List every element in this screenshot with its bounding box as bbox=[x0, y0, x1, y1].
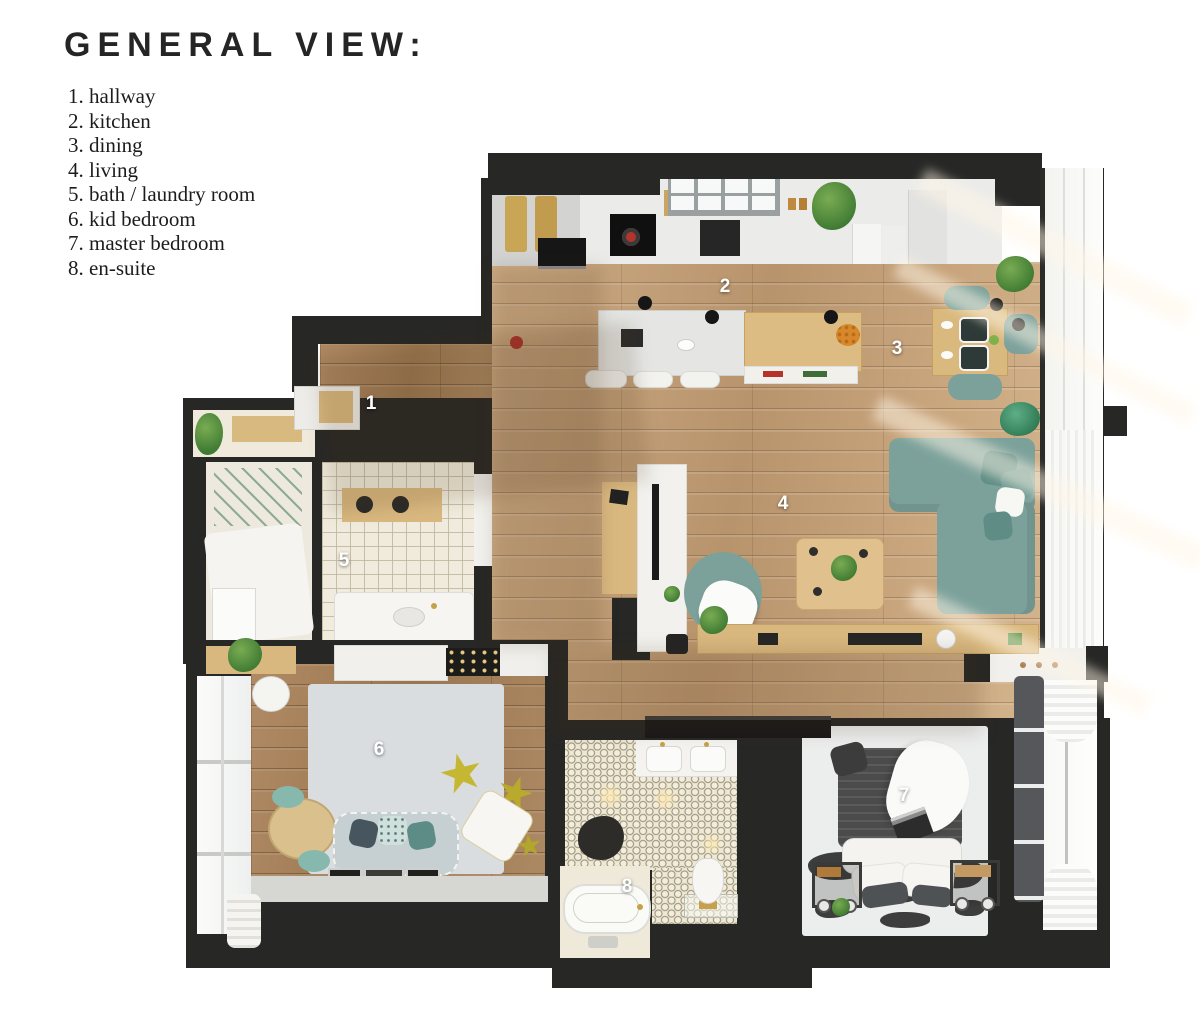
bench-item bbox=[1008, 633, 1022, 645]
floor-ledge bbox=[251, 876, 548, 902]
sink-basin bbox=[690, 746, 726, 772]
room-label-kitchen: 2 bbox=[720, 276, 731, 298]
wall bbox=[995, 153, 1042, 206]
laptop bbox=[609, 489, 629, 505]
dark-plant bbox=[578, 816, 624, 860]
dining-table bbox=[932, 308, 1008, 376]
sink-basin bbox=[393, 607, 425, 627]
pendant-light bbox=[638, 296, 652, 310]
star-pillow: ★ bbox=[514, 826, 555, 867]
kid-desk bbox=[334, 645, 448, 681]
plate bbox=[941, 351, 953, 359]
table-lamp bbox=[936, 629, 956, 649]
legend-item-dining: 3. dining bbox=[68, 133, 255, 158]
plant bbox=[831, 555, 857, 581]
room-label-bath-laundry: 5 bbox=[339, 550, 350, 572]
gold-faucet bbox=[704, 742, 709, 747]
pendant-light bbox=[824, 310, 838, 324]
oven bbox=[538, 238, 586, 269]
gold-faucet bbox=[431, 603, 437, 609]
media-bench bbox=[697, 624, 1039, 654]
bath-mat bbox=[588, 936, 618, 948]
legend-item-living: 4. living bbox=[68, 158, 255, 183]
pillow bbox=[983, 511, 1014, 542]
kitchen-appliance bbox=[882, 226, 906, 264]
ladder-shelf bbox=[214, 468, 302, 526]
room-label-dining: 3 bbox=[892, 338, 903, 360]
dining-chair bbox=[944, 286, 990, 310]
pendant-light bbox=[1012, 318, 1025, 331]
kitchen-window bbox=[668, 176, 780, 216]
tv bbox=[652, 484, 659, 580]
cutting-board bbox=[505, 196, 527, 252]
dining-chair bbox=[948, 374, 1002, 400]
kid-chair bbox=[272, 786, 304, 808]
light-switch bbox=[1052, 662, 1058, 668]
legend-item-kid-bedroom: 6. kid bedroom bbox=[68, 207, 255, 232]
cup bbox=[859, 549, 868, 558]
gold-faucet bbox=[660, 742, 665, 747]
room-label-en-suite: 8 bbox=[622, 876, 633, 898]
speaker bbox=[666, 634, 688, 654]
cup bbox=[809, 547, 818, 556]
sink-basin bbox=[646, 746, 682, 772]
dining-chair-tucked bbox=[959, 317, 989, 343]
window-frame bbox=[197, 760, 251, 764]
bathtub-sink-unit bbox=[334, 592, 474, 644]
pillow-dark bbox=[911, 884, 953, 908]
fruit-bowl bbox=[836, 324, 860, 346]
wall-stub bbox=[1086, 646, 1108, 682]
room-label-master-bedroom: 7 bbox=[899, 785, 910, 807]
window-panes bbox=[671, 179, 777, 213]
kid-door bbox=[500, 644, 548, 676]
bar-stool bbox=[633, 371, 673, 388]
spice-jar bbox=[788, 198, 796, 210]
light-switch bbox=[1020, 662, 1026, 668]
fridge bbox=[908, 190, 947, 264]
room-label-living: 4 bbox=[778, 493, 789, 515]
dishwasher bbox=[852, 224, 881, 264]
coffee-maker bbox=[621, 329, 643, 347]
cart-wheel bbox=[817, 899, 831, 913]
washer-door bbox=[356, 496, 373, 513]
island-shelf bbox=[744, 366, 858, 384]
wall bbox=[292, 316, 318, 392]
washer-counter bbox=[342, 488, 442, 522]
legend-item-master-bedroom: 7. master bedroom bbox=[68, 231, 255, 256]
cart-wheel bbox=[955, 897, 969, 911]
legend: 1. hallway 2. kitchen 3. dining 4. livin… bbox=[68, 84, 255, 280]
bench-item bbox=[758, 633, 778, 645]
pendant-light bbox=[990, 298, 1003, 311]
sheer-curtain bbox=[1046, 430, 1094, 656]
cup bbox=[813, 587, 822, 596]
desk-chair bbox=[252, 676, 290, 712]
spice-jar bbox=[799, 198, 807, 210]
legend-item-hallway: 1. hallway bbox=[68, 84, 255, 109]
sheer-curtain bbox=[1043, 864, 1097, 930]
bathroom-door bbox=[474, 474, 492, 566]
gold-faucet bbox=[637, 904, 643, 910]
nightstand-cart bbox=[950, 860, 1000, 906]
floor-plan-page: GENERAL VIEW: 1. hallway 2. kitchen 3. d… bbox=[0, 0, 1200, 1012]
pillow bbox=[378, 816, 407, 845]
room-label-kid-bedroom: 6 bbox=[374, 739, 385, 761]
washing-machine bbox=[212, 588, 256, 644]
wardrobe-shelf bbox=[319, 391, 353, 423]
dining-chair-tucked bbox=[959, 345, 989, 371]
ceiling-light-glow bbox=[700, 832, 724, 856]
pillow bbox=[406, 820, 437, 851]
headboard-cushions bbox=[1014, 676, 1044, 902]
ceiling-light-glow bbox=[596, 782, 624, 810]
legend-item-en-suite: 8. en-suite bbox=[68, 256, 255, 281]
kid-table bbox=[268, 798, 336, 860]
room-label-hallway: 1 bbox=[366, 393, 377, 415]
light-switch bbox=[1036, 662, 1042, 668]
bar-stool bbox=[680, 371, 720, 388]
cart-wheel bbox=[981, 897, 995, 911]
legend-item-bath-laundry: 5. bath / laundry room bbox=[68, 182, 255, 207]
master-window bbox=[1043, 680, 1097, 930]
toilet bbox=[692, 858, 724, 904]
kitchen-island-marble bbox=[598, 310, 746, 376]
page-title: GENERAL VIEW: bbox=[64, 26, 428, 65]
shelf-books bbox=[803, 371, 827, 377]
shelf-books bbox=[763, 371, 783, 377]
wall bbox=[640, 153, 1042, 179]
frying-pan bbox=[622, 228, 640, 246]
legend-item-kitchen: 2. kitchen bbox=[68, 109, 255, 134]
bowl bbox=[677, 339, 695, 351]
bench-item bbox=[848, 633, 922, 645]
knit-basket bbox=[227, 894, 261, 948]
pendant-light bbox=[705, 310, 719, 324]
plate bbox=[941, 321, 953, 329]
wardrobe bbox=[294, 386, 360, 430]
kitchen-sink bbox=[700, 220, 740, 256]
sheer-curtain bbox=[1043, 680, 1097, 742]
bathtub bbox=[563, 884, 651, 934]
cart-item bbox=[817, 867, 841, 877]
kid-chair bbox=[298, 850, 330, 872]
bar-stool bbox=[585, 370, 627, 388]
window-frame bbox=[221, 676, 224, 934]
washer-door bbox=[392, 496, 409, 513]
fairy-lights bbox=[446, 648, 500, 676]
wall bbox=[488, 153, 660, 195]
wall bbox=[292, 316, 492, 344]
fruit bbox=[989, 335, 999, 345]
window-frame bbox=[197, 852, 251, 856]
coffee-table bbox=[796, 538, 884, 610]
tv-console bbox=[637, 464, 687, 652]
pantry-shelf bbox=[232, 416, 302, 442]
cart-item bbox=[955, 865, 991, 877]
double-sink-counter bbox=[636, 740, 737, 777]
map-blob bbox=[880, 912, 930, 928]
wall bbox=[481, 178, 492, 320]
ceiling-light-glow bbox=[652, 786, 678, 812]
tv-flat bbox=[645, 716, 831, 738]
red-kettle bbox=[510, 336, 523, 349]
